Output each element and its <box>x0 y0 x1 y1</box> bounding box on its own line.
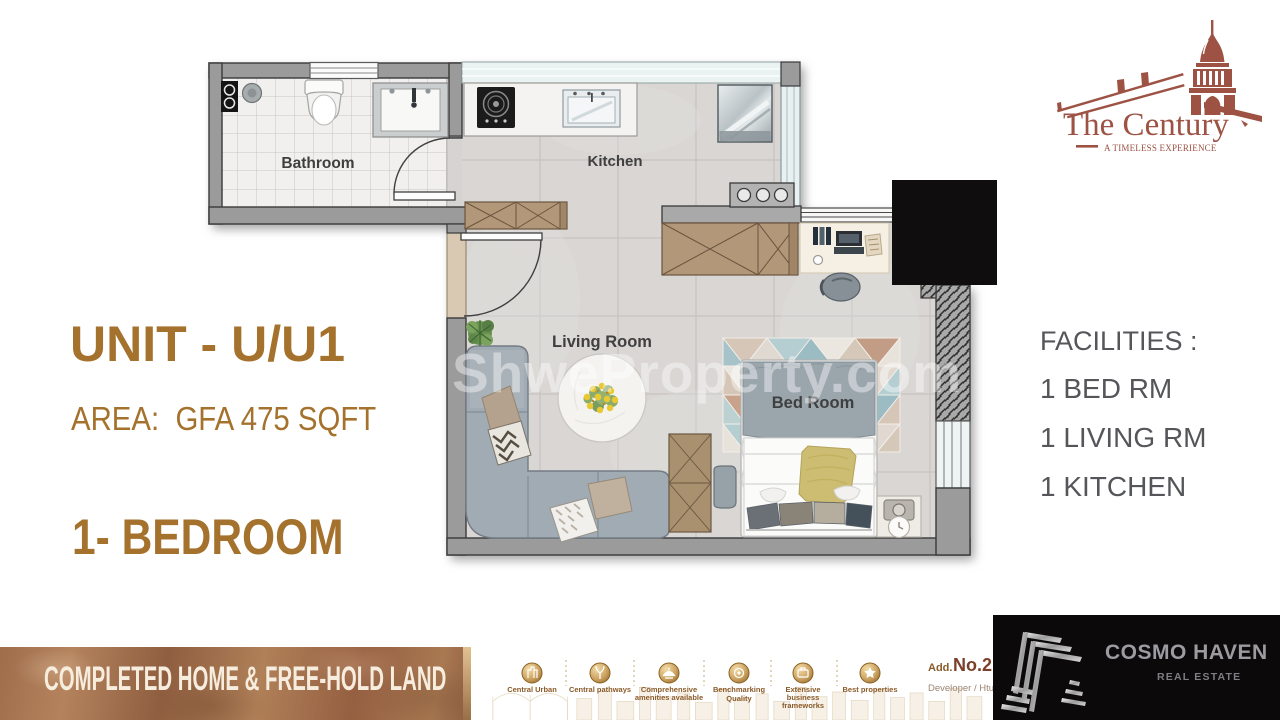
svg-text:ShweProperty.com: ShweProperty.com <box>452 342 962 404</box>
svg-text:Bathroom: Bathroom <box>281 155 354 172</box>
svg-text:Kitchen: Kitchen <box>587 153 642 170</box>
